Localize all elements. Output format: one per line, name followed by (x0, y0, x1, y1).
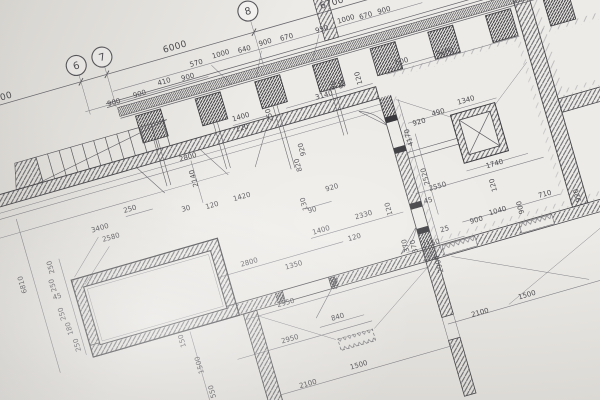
floor-plan-drawing: 800060006700 570100064090067095010006709… (0, 0, 600, 400)
blueprint-photo: 800060006700 570100064090067095010006709… (0, 0, 600, 400)
